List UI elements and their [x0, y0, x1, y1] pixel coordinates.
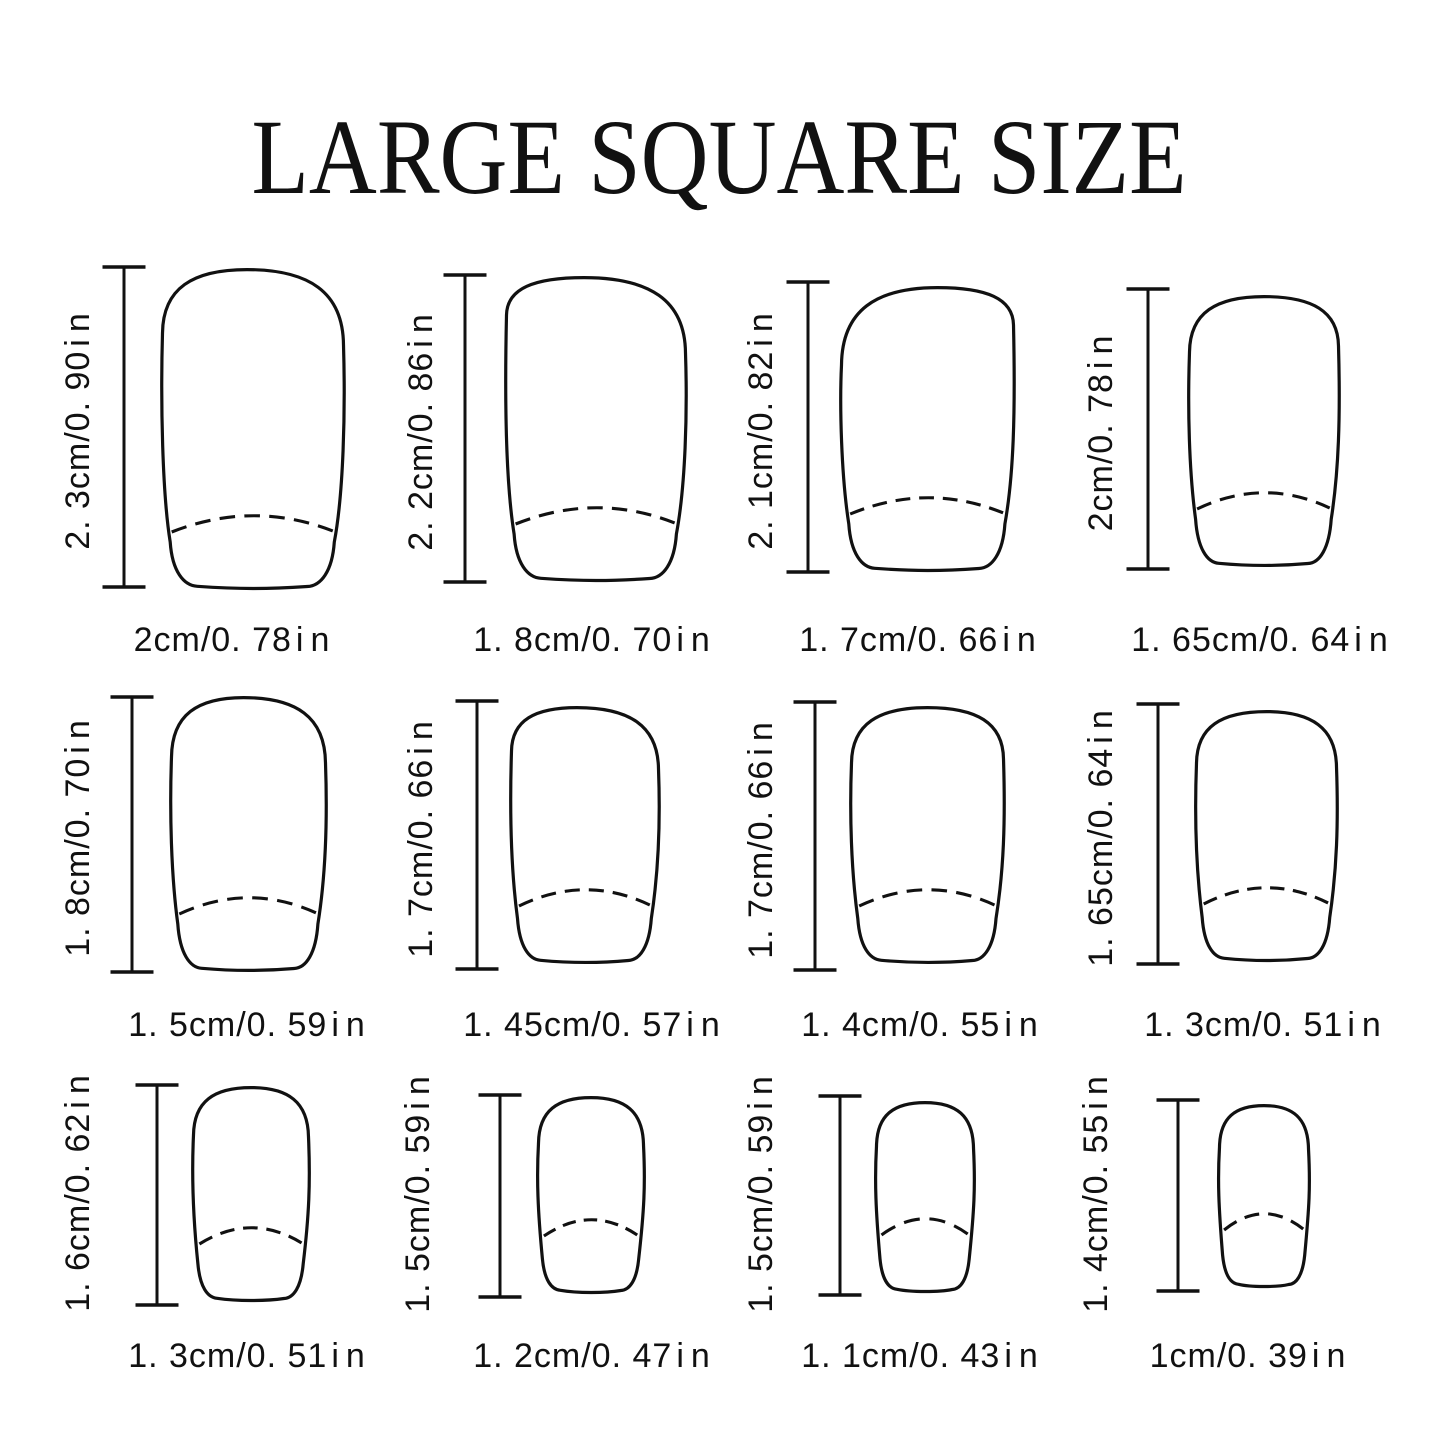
svg-text:2cm/0. 78in: 2cm/0. 78in	[134, 621, 331, 659]
svg-text:2cm/0. 78in: 2cm/0. 78in	[1082, 335, 1120, 532]
svg-text:LARGE SQUARE SIZE: LARGE SQUARE SIZE	[252, 99, 1187, 217]
svg-text:1. 65cm/0. 64in: 1. 65cm/0. 64in	[1131, 621, 1389, 659]
svg-text:1. 45cm/0. 57in: 1. 45cm/0. 57in	[463, 1006, 721, 1044]
svg-text:1. 65cm/0. 64in: 1. 65cm/0. 64in	[1082, 709, 1120, 967]
svg-text:1cm/0. 39in: 1cm/0. 39in	[1150, 1337, 1347, 1375]
